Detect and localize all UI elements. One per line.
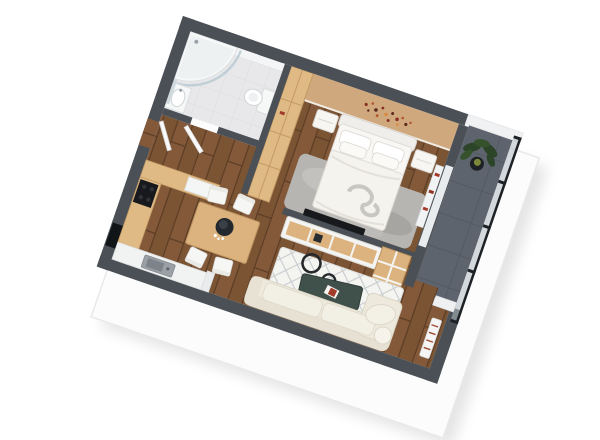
floorplan-svg — [0, 0, 600, 440]
floorplan-render — [0, 0, 600, 440]
